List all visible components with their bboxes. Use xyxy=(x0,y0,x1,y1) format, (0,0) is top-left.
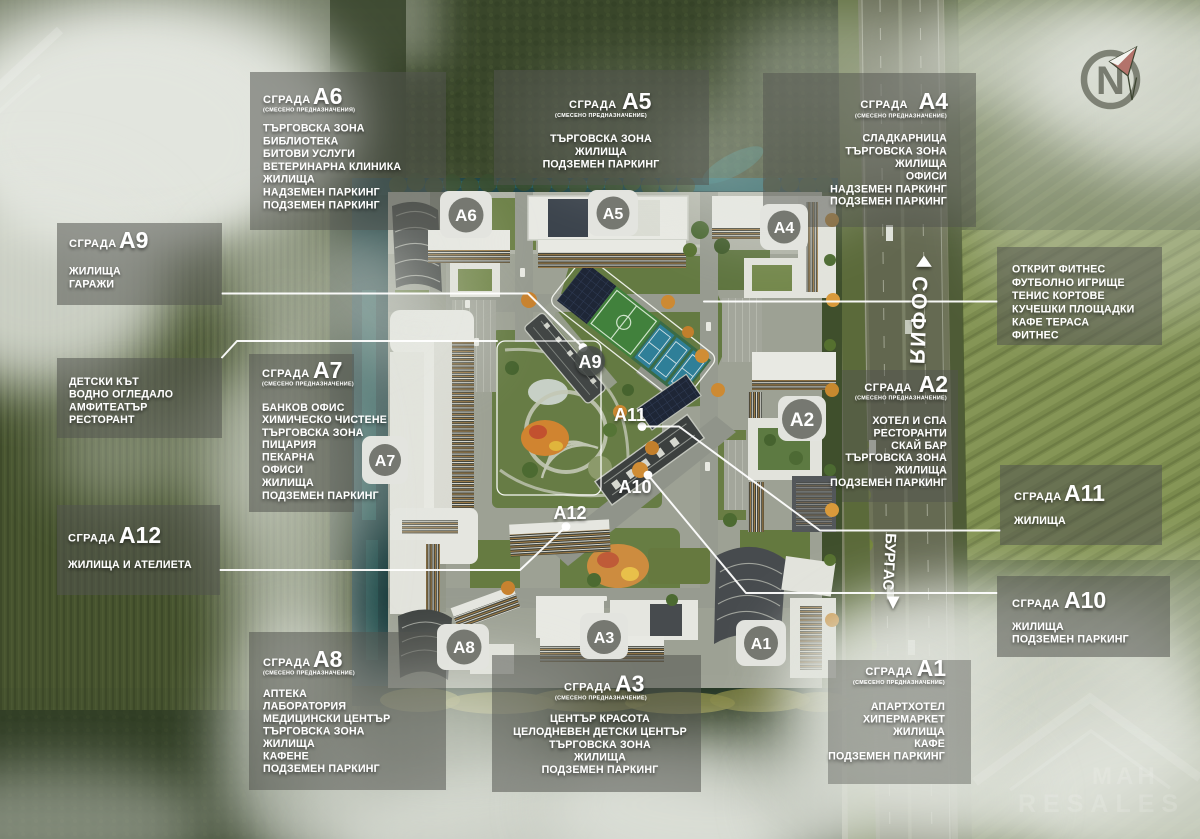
svg-text:СГРАДА: СГРАДА xyxy=(564,682,612,694)
svg-text:ОТКРИТ ФИТНЕС: ОТКРИТ ФИТНЕС xyxy=(1012,264,1106,276)
svg-text:НАДЗЕМЕН ПАРКИНГ: НАДЗЕМЕН ПАРКИНГ xyxy=(263,187,380,199)
svg-text:СГРАДА: СГРАДА xyxy=(263,94,311,106)
svg-text:ПОДЗЕМЕН ПАРКИНГ: ПОДЗЕМЕН ПАРКИНГ xyxy=(263,763,380,775)
svg-text:ВЕТЕРИНАРНА КЛИНИКА: ВЕТЕРИНАРНА КЛИНИКА xyxy=(263,161,401,173)
svg-text:ЖИЛИЩА: ЖИЛИЩА xyxy=(573,752,626,764)
svg-text:БУРГАС: БУРГАС xyxy=(879,533,899,591)
svg-text:А12: А12 xyxy=(553,503,586,523)
svg-text:А7: А7 xyxy=(313,357,342,383)
svg-text:АПАРТХОТЕЛ: АПАРТХОТЕЛ xyxy=(871,701,945,713)
svg-text:БАНКОВ ОФИС: БАНКОВ ОФИС xyxy=(262,402,345,414)
svg-text:ПИЦАРИЯ: ПИЦАРИЯ xyxy=(262,439,316,451)
svg-text:А2: А2 xyxy=(919,371,948,397)
svg-text:ПОДЗЕМЕН ПАРКИНГ: ПОДЗЕМЕН ПАРКИНГ xyxy=(1012,634,1129,646)
svg-text:(СМЕСЕНО ПРЕДНАЗНАЧЕНИЕ): (СМЕСЕНО ПРЕДНАЗНАЧЕНИЕ) xyxy=(263,671,355,677)
svg-text:ПОДЗЕМЕН ПАРКИНГ: ПОДЗЕМЕН ПАРКИНГ xyxy=(830,477,947,489)
svg-text:А4: А4 xyxy=(919,88,949,114)
svg-text:А1: А1 xyxy=(751,636,772,653)
svg-text:ТЪРГОВСКА ЗОНА: ТЪРГОВСКА ЗОНА xyxy=(845,452,947,464)
svg-text:СГРАДА: СГРАДА xyxy=(569,99,617,111)
svg-text:ТЕНИС КОРТОВЕ: ТЕНИС КОРТОВЕ xyxy=(1012,290,1105,302)
svg-text:А3: А3 xyxy=(594,630,615,647)
svg-text:А5: А5 xyxy=(603,206,624,223)
svg-text:СКАЙ БАР: СКАЙ БАР xyxy=(891,439,947,452)
svg-text:А8: А8 xyxy=(313,646,343,672)
svg-text:А6: А6 xyxy=(455,206,477,225)
svg-text:ЖИЛИЩА: ЖИЛИЩА xyxy=(1013,515,1066,527)
svg-text:ЖИЛИЩА: ЖИЛИЩА xyxy=(894,158,947,170)
svg-text:ПОДЗЕМЕН ПАРКИНГ: ПОДЗЕМЕН ПАРКИНГ xyxy=(830,196,947,208)
svg-text:А11: А11 xyxy=(1064,480,1105,506)
svg-text:СГРАДА: СГРАДА xyxy=(1012,598,1060,610)
svg-text:ЦЕЛОДНЕВЕН ДЕТСКИ ЦЕНТЪР: ЦЕЛОДНЕВЕН ДЕТСКИ ЦЕНТЪР xyxy=(513,726,687,738)
svg-text:(СМЕСЕНО ПРЕДНАЗНАЧЕНИЯ): (СМЕСЕНО ПРЕДНАЗНАЧЕНИЯ) xyxy=(263,108,355,114)
svg-text:БИБЛИОТЕКА: БИБЛИОТЕКА xyxy=(263,135,339,147)
svg-text:ФИТНЕС: ФИТНЕС xyxy=(1012,330,1059,342)
svg-text:А9: А9 xyxy=(119,227,148,253)
svg-text:СГРАДА: СГРАДА xyxy=(68,533,116,545)
svg-text:СГРАДА: СГРАДА xyxy=(263,657,311,669)
svg-text:КАФЕ: КАФЕ xyxy=(914,738,945,750)
svg-text:А10: А10 xyxy=(1064,587,1106,613)
svg-text:(СМЕСЕНО ПРЕДНАЗНАЧЕНИЕ): (СМЕСЕНО ПРЕДНАЗНАЧЕНИЕ) xyxy=(262,382,354,388)
svg-text:БИТОВИ УСЛУГИ: БИТОВИ УСЛУГИ xyxy=(263,148,355,160)
svg-text:ПЕКАРНА: ПЕКАРНА xyxy=(262,452,315,464)
svg-text:А4: А4 xyxy=(774,220,795,237)
svg-text:СЛАДКАРНИЦА: СЛАДКАРНИЦА xyxy=(863,133,948,145)
svg-text:ЖИЛИЩА И АТЕЛИЕТА: ЖИЛИЩА И АТЕЛИЕТА xyxy=(67,559,192,571)
svg-text:ЖИЛИЩА: ЖИЛИЩА xyxy=(1011,621,1064,633)
svg-text:КАФЕНЕ: КАФЕНЕ xyxy=(263,750,309,762)
svg-text:ТЪРГОВСКА ЗОНА: ТЪРГОВСКА ЗОНА xyxy=(845,145,947,157)
svg-text:ПОДЗЕМЕН ПАРКИНГ: ПОДЗЕМЕН ПАРКИНГ xyxy=(262,490,379,502)
svg-text:ЖИЛИЩА: ЖИЛИЩА xyxy=(574,146,627,158)
svg-text:А2: А2 xyxy=(790,410,814,431)
svg-text:А10: А10 xyxy=(618,477,651,497)
svg-text:ПОДЗЕМЕН ПАРКИНГ: ПОДЗЕМЕН ПАРКИНГ xyxy=(542,764,659,776)
svg-text:ГАРАЖИ: ГАРАЖИ xyxy=(69,279,114,291)
svg-text:ЖИЛИЩА: ЖИЛИЩА xyxy=(68,266,121,278)
svg-text:ТЪРГОВСКА ЗОНА: ТЪРГОВСКА ЗОНА xyxy=(549,739,651,751)
svg-text:ТЪРГОВСКА ЗОНА: ТЪРГОВСКА ЗОНА xyxy=(550,133,652,145)
svg-text:ЖИЛИЩА: ЖИЛИЩА xyxy=(261,477,314,489)
svg-text:ФУТБОЛНО ИГРИЩЕ: ФУТБОЛНО ИГРИЩЕ xyxy=(1012,277,1125,289)
svg-text:ТЪРГОВСКА ЗОНА: ТЪРГОВСКА ЗОНА xyxy=(262,427,364,439)
svg-text:А3: А3 xyxy=(615,671,644,697)
svg-text:СГРАДА: СГРАДА xyxy=(69,238,117,250)
svg-text:СГРАДА: СГРАДА xyxy=(865,666,913,678)
svg-text:(СМЕСЕНО ПРЕДНАЗНАЧЕНИЕ): (СМЕСЕНО ПРЕДНАЗНАЧЕНИЕ) xyxy=(555,113,647,119)
svg-text:ЖИЛИЩА: ЖИЛИЩА xyxy=(894,465,947,477)
svg-text:РЕСТОРАНТ: РЕСТОРАНТ xyxy=(69,414,135,426)
svg-text:КАФЕ ТЕРАСА: КАФЕ ТЕРАСА xyxy=(1012,317,1089,329)
svg-text:А7: А7 xyxy=(375,453,396,470)
svg-text:(СМЕСЕНО ПРЕДНАЗНАЧЕНИЕ): (СМЕСЕНО ПРЕДНАЗНАЧЕНИЕ) xyxy=(855,114,947,120)
svg-text:ЛАБОРАТОРИЯ: ЛАБОРАТОРИЯ xyxy=(263,700,346,712)
svg-text:ДЕТСКИ КЪТ: ДЕТСКИ КЪТ xyxy=(69,376,139,388)
svg-text:(СМЕСЕНО ПРЕДНАЗНАЧЕНИЕ): (СМЕСЕНО ПРЕДНАЗНАЧЕНИЕ) xyxy=(555,696,647,702)
svg-text:АПТЕКА: АПТЕКА xyxy=(263,688,307,700)
svg-text:RESALES: RESALES xyxy=(1018,790,1185,818)
svg-text:СГРАДА: СГРАДА xyxy=(1014,491,1062,503)
svg-text:СГРАДА: СГРАДА xyxy=(262,368,310,380)
svg-text:ВОДНО ОГЛЕДАЛО: ВОДНО ОГЛЕДАЛО xyxy=(69,389,173,401)
svg-text:НАДЗЕМЕН ПАРКИНГ: НАДЗЕМЕН ПАРКИНГ xyxy=(830,183,947,195)
svg-text:МЕДИЦИНСКИ ЦЕНТЪР: МЕДИЦИНСКИ ЦЕНТЪР xyxy=(263,713,390,725)
svg-text:ЦЕНТЪР КРАСОТА: ЦЕНТЪР КРАСОТА xyxy=(550,713,650,725)
svg-text:ПОДЗЕМЕН ПАРКИНГ: ПОДЗЕМЕН ПАРКИНГ xyxy=(263,199,380,211)
svg-text:А5: А5 xyxy=(622,88,652,114)
svg-text:ОФИСИ: ОФИСИ xyxy=(262,464,303,476)
svg-text:АМФИТЕАТЪР: АМФИТЕАТЪР xyxy=(69,401,148,413)
svg-text:ПОДЗЕМЕН ПАРКИНГ: ПОДЗЕМЕН ПАРКИНГ xyxy=(543,159,660,171)
svg-text:СОФИЯ: СОФИЯ xyxy=(905,276,931,367)
svg-text:А11: А11 xyxy=(614,405,646,425)
svg-text:ХИМИЧЕСКО ЧИСТЕНЕ: ХИМИЧЕСКО ЧИСТЕНЕ xyxy=(262,414,387,426)
svg-text:РЕСТОРАНТИ: РЕСТОРАНТИ xyxy=(874,427,948,439)
svg-text:ТЪРГОВСКА ЗОНА: ТЪРГОВСКА ЗОНА xyxy=(263,123,365,135)
svg-text:А12: А12 xyxy=(119,522,161,548)
svg-text:ЖИЛИЩА: ЖИЛИЩА xyxy=(262,174,315,186)
svg-text:(СМЕСЕНО ПРЕДНАЗНАЧЕНИЕ): (СМЕСЕНО ПРЕДНАЗНАЧЕНИЕ) xyxy=(853,680,945,686)
svg-text:А9: А9 xyxy=(578,352,601,372)
svg-text:СГРАДА: СГРАДА xyxy=(864,382,912,394)
svg-text:А8: А8 xyxy=(453,638,475,657)
svg-text:А1: А1 xyxy=(917,655,947,681)
svg-text:ЖИЛИЩА: ЖИЛИЩА xyxy=(262,738,315,750)
svg-text:ХИПЕРМАРКЕТ: ХИПЕРМАРКЕТ xyxy=(863,713,945,725)
svg-text:КУЧЕШКИ ПЛОЩАДКИ: КУЧЕШКИ ПЛОЩАДКИ xyxy=(1012,304,1134,316)
svg-text:ТЪРГОВСКА ЗОНА: ТЪРГОВСКА ЗОНА xyxy=(263,725,365,737)
svg-text:ХОТЕЛ И СПА: ХОТЕЛ И СПА xyxy=(872,415,947,427)
svg-text:ОФИСИ: ОФИСИ xyxy=(906,171,947,183)
svg-text:ЖИЛИЩА: ЖИЛИЩА xyxy=(892,726,945,738)
svg-text:ПОДЗЕМЕН ПАРКИНГ: ПОДЗЕМЕН ПАРКИНГ xyxy=(828,751,945,763)
svg-text:(СМЕСЕНО ПРЕДНАЗНАЧЕНИЕ): (СМЕСЕНО ПРЕДНАЗНАЧЕНИЕ) xyxy=(855,396,947,402)
svg-text:МАН: МАН xyxy=(1092,763,1159,790)
svg-text:СГРАДА: СГРАДА xyxy=(860,99,908,111)
svg-text:А6: А6 xyxy=(313,83,342,109)
